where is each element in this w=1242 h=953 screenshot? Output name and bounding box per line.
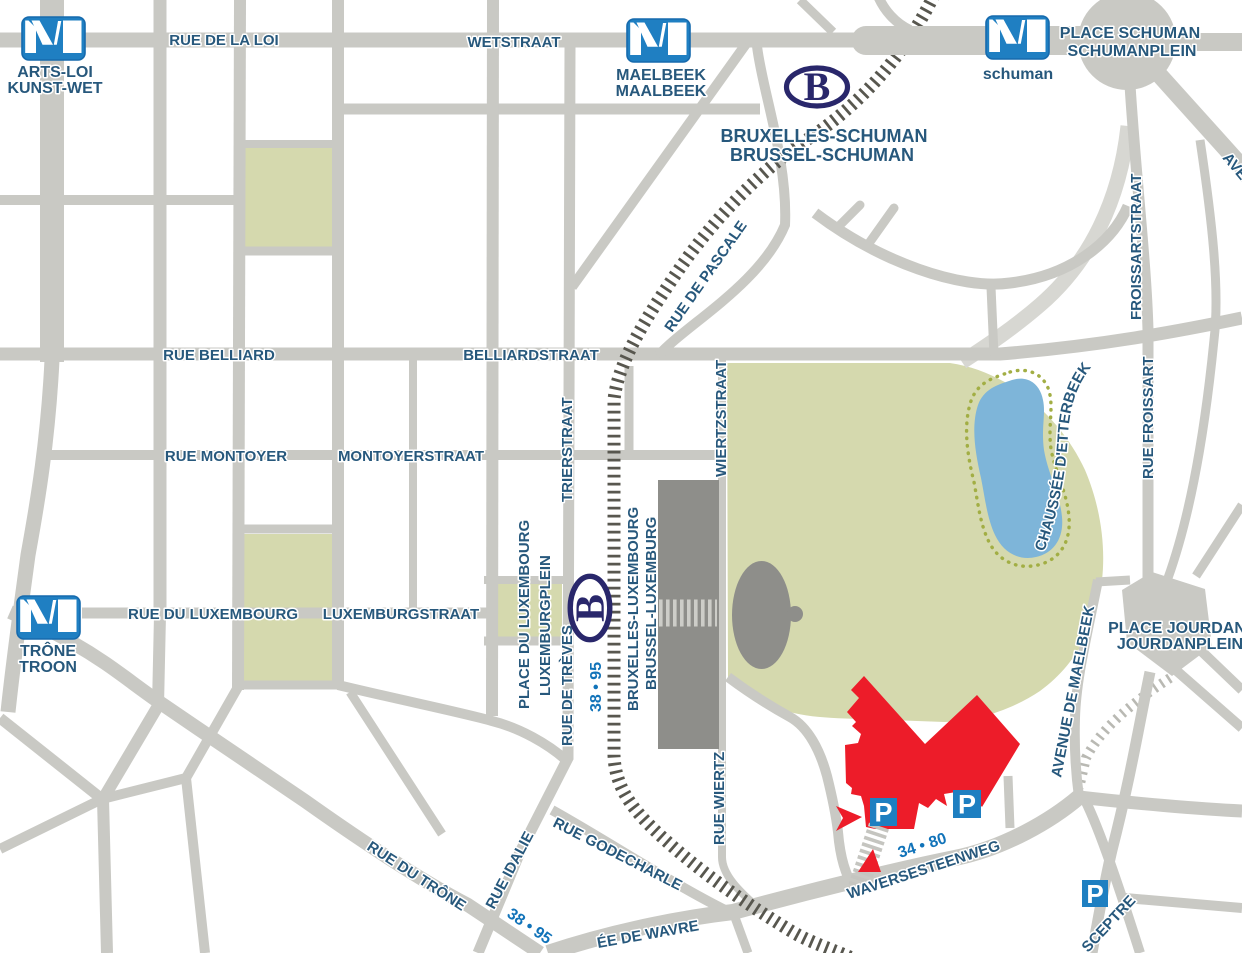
svg-text:BELLIARDSTRAAT: BELLIARDSTRAAT: [463, 347, 599, 364]
svg-text:RUE BELLIARD: RUE BELLIARD: [163, 347, 275, 364]
svg-text:RUE DU LUXEMBOURG: RUE DU LUXEMBOURG: [128, 606, 298, 623]
svg-text:BRUXELLES-SCHUMAN: BRUXELLES-SCHUMAN: [721, 126, 928, 146]
svg-text:P: P: [1086, 879, 1103, 909]
svg-text:WETSTRAAT: WETSTRAAT: [467, 34, 560, 51]
svg-text:RUE DE LA LOI: RUE DE LA LOI: [169, 32, 278, 49]
svg-text:PLACE SCHUMAN: PLACE SCHUMAN: [1060, 25, 1200, 42]
svg-text:JOURDANPLEIN: JOURDANPLEIN: [1117, 636, 1242, 653]
svg-text:ARTS-LOI: ARTS-LOI: [17, 64, 93, 81]
svg-text:BRUSSEL-LUXEMBURG: BRUSSEL-LUXEMBURG: [643, 517, 660, 690]
svg-text:PLACE JOURDAN: PLACE JOURDAN: [1108, 620, 1242, 637]
svg-text:PLACE DU LUXEMBOURG: PLACE DU LUXEMBOURG: [516, 520, 533, 709]
svg-text:RUE DE TRÈVES: RUE DE TRÈVES: [559, 625, 576, 746]
svg-text:RUE MONTOYER: RUE MONTOYER: [165, 448, 287, 465]
svg-text:MAALBEEK: MAALBEEK: [616, 83, 707, 100]
svg-text:LUXEMBURGSTRAAT: LUXEMBURGSTRAAT: [323, 606, 479, 623]
svg-text:38 • 95: 38 • 95: [588, 662, 605, 712]
svg-text:BRUXELLES-LUXEMBOURG: BRUXELLES-LUXEMBOURG: [625, 507, 642, 711]
svg-text:P: P: [958, 790, 976, 820]
svg-text:TROON: TROON: [19, 659, 77, 676]
svg-text:KUNST-WET: KUNST-WET: [7, 80, 102, 97]
svg-text:TRÔNE: TRÔNE: [20, 641, 76, 660]
svg-text:TRIERSTRAAT: TRIERSTRAAT: [559, 397, 576, 502]
svg-text:MONTOYERSTRAAT: MONTOYERSTRAAT: [338, 448, 484, 465]
svg-text:MAELBEEK: MAELBEEK: [616, 67, 706, 84]
svg-text:SCHUMANPLEIN: SCHUMANPLEIN: [1068, 43, 1197, 60]
svg-text:WIERTZSTRAAT: WIERTZSTRAAT: [713, 360, 730, 477]
svg-text:schuman: schuman: [983, 66, 1053, 83]
svg-text:RUE FROISSART: RUE FROISSART: [1140, 356, 1157, 479]
svg-text:LUXEMBURGPLEIN: LUXEMBURGPLEIN: [537, 555, 554, 696]
svg-text:FROISSARTSTRAAT: FROISSARTSTRAAT: [1128, 174, 1145, 320]
svg-text:BRUSSEL-SCHUMAN: BRUSSEL-SCHUMAN: [730, 145, 914, 165]
svg-text:P: P: [874, 798, 892, 828]
svg-text:RUE WIERTZ: RUE WIERTZ: [711, 752, 728, 845]
